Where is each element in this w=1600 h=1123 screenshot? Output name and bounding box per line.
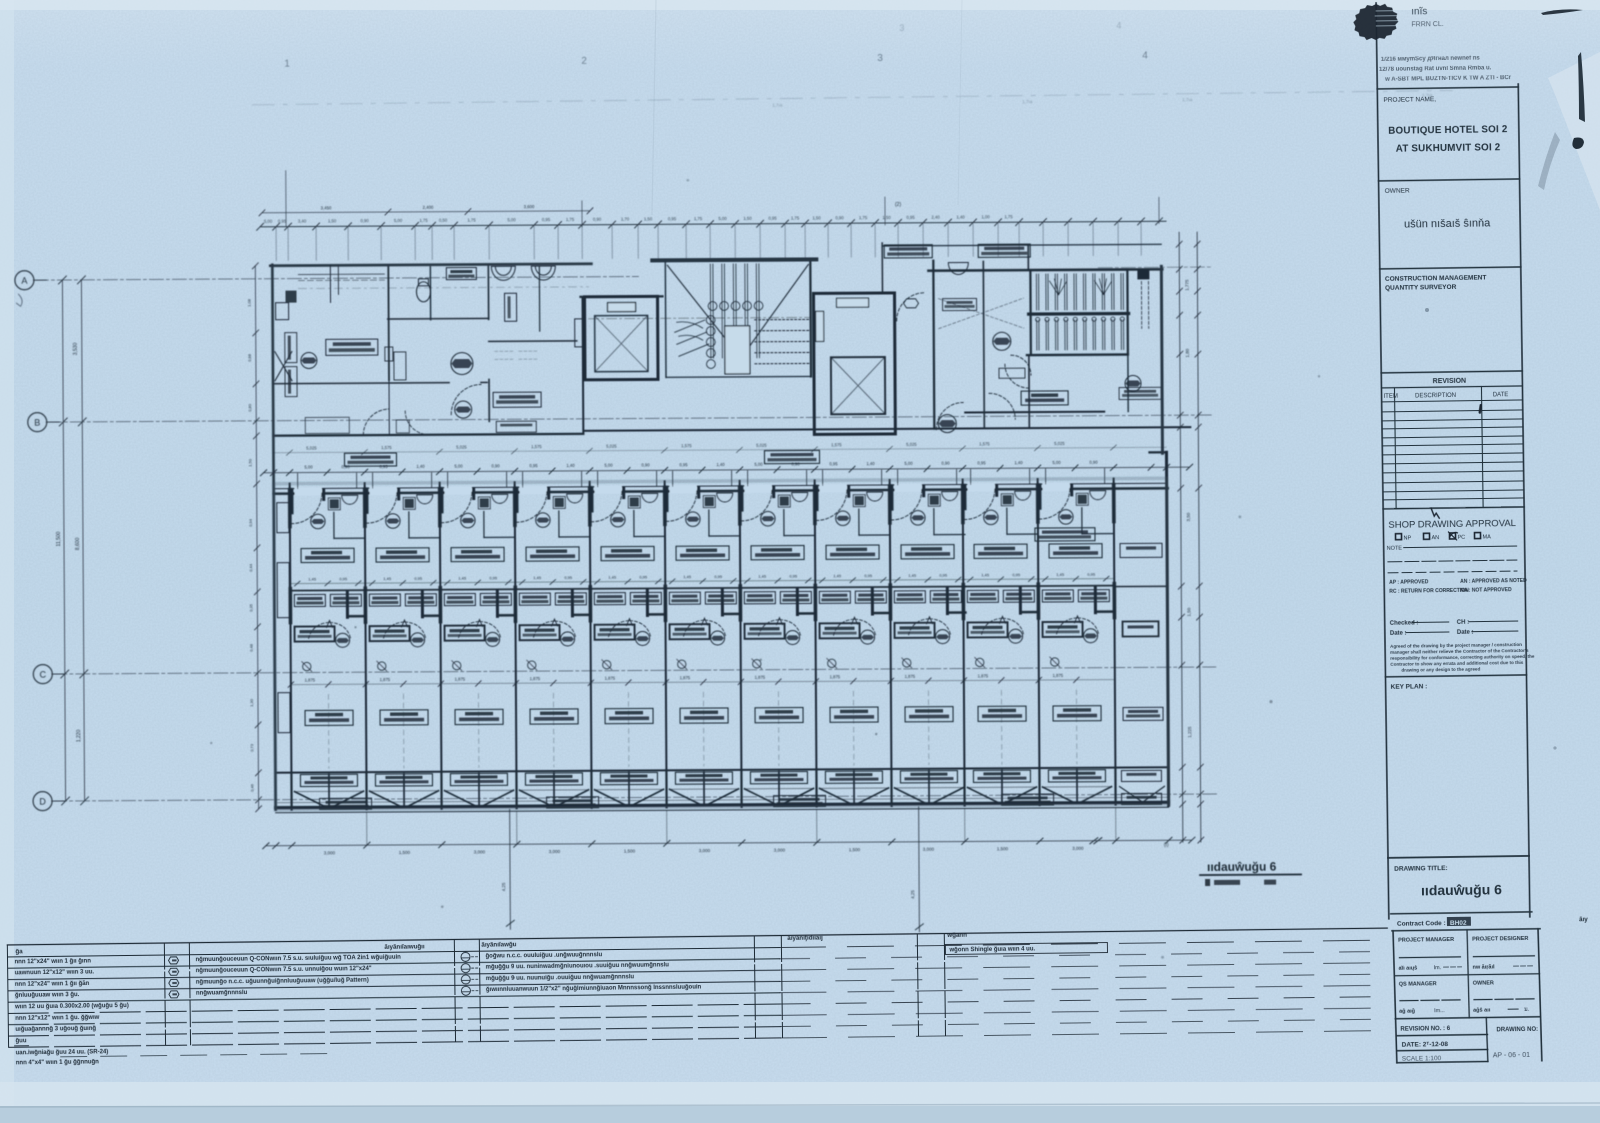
svg-text:1: 1 (284, 59, 290, 70)
svg-text:0,94: 0,94 (248, 518, 253, 527)
svg-text:0,88: 0,88 (247, 353, 252, 362)
svg-text:5,025: 5,025 (606, 444, 617, 449)
svg-text:1,40: 1,40 (716, 462, 725, 467)
svg-text:OWNER: OWNER (1473, 980, 1494, 986)
svg-text:PROJECT MANAGER: PROJECT MANAGER (1398, 937, 1454, 944)
svg-text:(ı): (ı) (1164, 842, 1169, 848)
svg-text:uığuağannnğ 3 uğouğ ğuınğ: uığuağannnğ 3 uğouğ ğuınğ (15, 1026, 96, 1033)
svg-text:3,000: 3,000 (1072, 846, 1084, 851)
svg-text:3,000: 3,000 (699, 848, 711, 853)
svg-text:2,40: 2,40 (931, 215, 940, 220)
svg-text:ııdauŵuğu 6: ııdauŵuğu 6 (1421, 881, 1502, 898)
svg-text:nw ãıŗãıI: nw ãıŗãıI (1473, 964, 1496, 970)
svg-text:CONSTRUCTION MANAGEMENT: CONSTRUCTION MANAGEMENT (1385, 274, 1487, 282)
svg-text:nnn 12"x24" wıın 1 ğıı ğãn: nnn 12"x24" wıın 1 ğıı ğãn (15, 981, 90, 988)
svg-text:1,75: 1,75 (1004, 214, 1013, 219)
svg-text:1,75: 1,75 (791, 216, 800, 221)
svg-text:3,450: 3,450 (321, 205, 332, 210)
svg-text:1,7ıa: 1,7ıa (1022, 99, 1033, 104)
svg-text:5,025: 5,025 (456, 445, 467, 450)
svg-text:3,000: 3,000 (324, 850, 336, 855)
svg-text:1,40: 1,40 (1014, 460, 1023, 465)
svg-text:1,50: 1,50 (247, 458, 252, 467)
svg-text:nnn 4"x4" wıın 1 ğu ğğnnuğn: nnn 4"x4" wıın 1 ğu ğğnnuğn (16, 1059, 99, 1066)
svg-text:1,500: 1,500 (997, 846, 1009, 851)
svg-text:1,500: 1,500 (399, 850, 411, 855)
svg-text:1,50: 1,50 (812, 215, 821, 220)
svg-text:1,575: 1,575 (681, 443, 692, 448)
svg-text:0,95: 0,95 (278, 219, 287, 224)
svg-text:2: 2 (581, 56, 587, 67)
svg-text:1,75: 1,75 (419, 218, 428, 223)
svg-text:PROJECT DESIGNER: PROJECT DESIGNER (1472, 936, 1528, 943)
svg-text:nnn 12"x12" wıın 1 ğu. ğğwıw: nnn 12"x12" wıın 1 ğu. ğğwıw (15, 1015, 99, 1022)
svg-text:0,90: 0,90 (341, 464, 350, 469)
svg-text:4,25: 4,25 (501, 882, 506, 891)
svg-text:0,90: 0,90 (835, 215, 844, 220)
svg-text:1,7ıa: 1,7ıa (1182, 97, 1193, 102)
svg-text:3,000: 3,000 (474, 849, 486, 854)
svg-text:C: C (40, 670, 47, 680)
svg-text:3,000: 3,000 (549, 849, 561, 854)
svg-text:0,90: 0,90 (360, 218, 369, 223)
svg-text:5,00: 5,00 (904, 461, 913, 466)
svg-text:QUANTITY SURVEYOR: QUANTITY SURVEYOR (1385, 284, 1457, 292)
svg-text:3,40: 3,40 (298, 219, 307, 224)
svg-text:0,95: 0,95 (977, 460, 986, 465)
svg-text:4: 4 (1142, 50, 1148, 61)
svg-text:ãıy: ãıy (1579, 916, 1588, 923)
svg-text:SHOP DRAWING APPROVAL: SHOP DRAWING APPROVAL (1388, 518, 1516, 531)
svg-text:1,50: 1,50 (1186, 607, 1191, 616)
svg-text:1,75: 1,75 (859, 215, 868, 220)
svg-text:ม.: ม. (1524, 1007, 1530, 1013)
svg-text:0,48: 0,48 (249, 643, 254, 652)
svg-text:PROJECT NAME,: PROJECT NAME, (1383, 96, 1436, 104)
svg-text:5,00: 5,00 (1052, 460, 1061, 465)
svg-text:nnğwuamğnnnslu: nnğwuamğnnnslu (196, 990, 248, 997)
svg-text:1,40: 1,40 (416, 464, 425, 469)
svg-text:0,90: 0,90 (1089, 460, 1098, 465)
svg-text:ãıyãnıĩaıwuğıı: ãıyãnıĩaıwuğıı (384, 943, 425, 950)
svg-text:ušün nıšaıš ŝınňa: ušün nıšaıš ŝınňa (1404, 217, 1491, 230)
svg-text:D: D (39, 797, 46, 807)
svg-text:4: 4 (1116, 21, 1121, 31)
svg-text:1,40: 1,40 (956, 214, 965, 219)
svg-text:REVISION NO. : 6: REVISION NO. : 6 (1400, 1026, 1450, 1033)
svg-text:ãıyãnıĩawğu: ãıyãnıĩawğu (481, 941, 516, 948)
svg-text:1,500: 1,500 (624, 849, 636, 854)
svg-text:0,35: 0,35 (248, 603, 253, 612)
svg-text:AP - 06 - 01: AP - 06 - 01 (1493, 1052, 1530, 1060)
svg-text:1,50: 1,50 (743, 216, 752, 221)
svg-text:BOUTIQUE HOTEL SOI 2: BOUTIQUE HOTEL SOI 2 (1388, 124, 1508, 137)
svg-text:4,25: 4,25 (910, 890, 915, 899)
svg-text:0,44: 0,44 (248, 563, 253, 572)
svg-text:3,530: 3,530 (73, 342, 79, 355)
svg-text:NA : NOT APPROVED: NA : NOT APPROVED (1460, 587, 1512, 594)
svg-text:0,90: 0,90 (491, 463, 500, 468)
svg-text:5,00: 5,00 (264, 219, 273, 224)
svg-text:0,95: 0,95 (906, 215, 915, 220)
svg-text:B: B (34, 418, 40, 428)
svg-text:0,95: 0,95 (542, 217, 551, 222)
svg-text:1,575: 1,575 (979, 441, 990, 446)
svg-text:BH02: BH02 (1450, 920, 1467, 927)
svg-text:1,70: 1,70 (621, 217, 630, 222)
svg-text:5,00: 5,00 (304, 464, 313, 469)
svg-text:aĩı aıųŝ: aĩı aıųŝ (1399, 965, 1418, 971)
svg-text:1,225: 1,225 (1187, 726, 1192, 738)
svg-text:Date :: Date : (1390, 631, 1407, 637)
svg-text:5,00: 5,00 (394, 218, 403, 223)
svg-text:DESCRIPTION: DESCRIPTION (1415, 393, 1456, 400)
svg-text:ITEM: ITEM (1384, 394, 1398, 400)
svg-text:5,025: 5,025 (906, 442, 917, 447)
svg-text:RC : RETURN FOR CORRECTION: RC : RETURN FOR CORRECTION (1389, 588, 1469, 595)
svg-text:5,00: 5,00 (507, 217, 516, 222)
svg-text:2,400: 2,400 (423, 205, 434, 210)
svg-text:AP : APPROVED: AP : APPROVED (1389, 579, 1429, 586)
svg-text:1,00: 1,00 (981, 214, 990, 219)
svg-text:1,575: 1,575 (381, 445, 392, 450)
svg-text:uan.iwğniağu ğuu 24 uu. (SR-24: uan.iwğniağu ğuu 24 uu. (SR-24) (16, 1049, 109, 1056)
svg-text:0,50: 0,50 (439, 218, 448, 223)
svg-text:AT SUKHUMVIT SOI 2: AT SUKHUMVIT SOI 2 (1396, 142, 1501, 154)
svg-text:Contract Code :: Contract Code : (1397, 920, 1446, 928)
svg-text:NOTE: NOTE (1387, 546, 1403, 552)
svg-text:0,95: 0,95 (679, 462, 688, 467)
svg-text:0,95: 0,95 (829, 461, 838, 466)
svg-text:3: 3 (877, 53, 883, 64)
svg-text:5,00: 5,00 (604, 463, 613, 468)
svg-text:11,500: 11,500 (56, 531, 62, 546)
svg-text:wğann: wğann (946, 932, 967, 939)
svg-text:OWNER: OWNER (1385, 187, 1410, 194)
svg-text:PC: PC (1458, 535, 1466, 541)
svg-text:ğa: ğa (15, 948, 23, 955)
svg-text:CH :: CH : (1457, 620, 1469, 626)
svg-text:REVISION: REVISION (1433, 378, 1467, 385)
svg-text:0,90: 0,90 (941, 461, 950, 466)
svg-text:ağ aığ: ağ aığ (1399, 1009, 1415, 1015)
svg-text:1,75: 1,75 (566, 217, 575, 222)
svg-text:ğuu: ğuu (15, 1038, 26, 1044)
svg-text:5,00: 5,00 (718, 216, 727, 221)
svg-text:8,600: 8,600 (75, 537, 81, 550)
svg-text:KEY PLAN :: KEY PLAN : (1391, 683, 1428, 691)
svg-text:1,7ıa: 1,7ıa (772, 103, 783, 108)
svg-text:0,95: 0,95 (529, 463, 538, 468)
svg-text:Im.: Im. (1434, 965, 1442, 971)
svg-text:DRAWING TITLE:: DRAWING TITLE: (1394, 865, 1448, 873)
svg-text:5,025: 5,025 (1054, 441, 1065, 446)
svg-text:nnn 12"x24" wıın 1 ğıı ğınn: nnn 12"x24" wıın 1 ğıı ğınn (15, 958, 92, 965)
svg-text:ğnluuğuuaw wıın 3 ğu.: ğnluuğuuaw wıın 3 ğu. (15, 992, 80, 999)
svg-text:1,50: 1,50 (328, 218, 337, 223)
svg-text:1,30: 1,30 (249, 698, 254, 707)
svg-text:1,50: 1,50 (644, 216, 653, 221)
svg-text:1,220: 1,220 (76, 729, 82, 742)
svg-text:0,80: 0,80 (247, 403, 252, 412)
svg-text:0,46: 0,46 (249, 783, 254, 792)
svg-text:3,600: 3,600 (524, 204, 535, 209)
svg-text:0,95: 0,95 (379, 464, 388, 469)
svg-text:1,75: 1,75 (467, 217, 476, 222)
svg-text:3,000: 3,000 (923, 847, 935, 852)
svg-text:DATE: 2ᵀ-12-08: DATE: 2ᵀ-12-08 (1402, 1041, 1449, 1049)
svg-text:1,40: 1,40 (566, 463, 575, 468)
svg-text:Im...: Im... (1434, 1008, 1445, 1014)
svg-text:0,90: 0,90 (641, 462, 650, 467)
svg-text:ağŝ aıı: ağŝ aıı (1473, 1007, 1491, 1013)
svg-text:0,95: 0,95 (668, 216, 677, 221)
svg-text:Date :: Date : (1457, 630, 1474, 636)
svg-text:ııdauŵuğu 6: ııdauŵuğu 6 (1207, 860, 1277, 874)
svg-text:A: A (21, 276, 27, 286)
svg-text:AN : APPROVED AS NOTED: AN : APPROVED AS NOTED (1460, 578, 1527, 585)
svg-text:5,00: 5,00 (754, 462, 763, 467)
svg-text:0,73: 0,73 (249, 743, 254, 752)
svg-text:AN: AN (1432, 535, 1440, 541)
svg-text:MA: MA (1483, 534, 1492, 540)
svg-text:1,75: 1,75 (694, 216, 703, 221)
svg-text:3: 3 (899, 23, 904, 33)
svg-text:uawnuun 12"x12" wıın 3 uu.: uawnuun 12"x12" wıın 3 uu. (15, 969, 95, 976)
svg-text:1,40: 1,40 (866, 461, 875, 466)
svg-text:ãıyãnıţıdııaij: ãıyãnıţıdııaij (787, 934, 823, 941)
svg-text:(2): (2) (895, 202, 901, 208)
svg-text:1,80: 1,80 (1185, 348, 1190, 357)
svg-text:5,025: 5,025 (306, 445, 317, 450)
svg-text:5,025: 5,025 (756, 443, 767, 448)
svg-text:DATE: DATE (1493, 392, 1509, 398)
svg-text:1,50: 1,50 (882, 215, 891, 220)
svg-text:ınĩs: ınĩs (1411, 6, 1427, 17)
svg-text:wğonn Shingle ğuıa wıın 4 u: wğonn Shingle ğuıa wıın 4 uu. (948, 946, 1035, 953)
svg-text:3,000: 3,000 (774, 848, 786, 853)
svg-text:1,500: 1,500 (849, 847, 861, 852)
svg-text:3,50: 3,50 (1186, 512, 1191, 521)
svg-text:5,00: 5,00 (454, 464, 463, 469)
svg-text:QS MANAGER: QS MANAGER (1399, 981, 1437, 988)
svg-text:0,95: 0,95 (768, 216, 777, 221)
svg-text:1,575: 1,575 (831, 442, 842, 447)
svg-text:DRAWING NO:: DRAWING NO: (1496, 1027, 1538, 1034)
svg-text:FRRN CL.: FRRN CL. (1411, 21, 1443, 28)
svg-text:1,775: 1,775 (1184, 279, 1189, 291)
svg-text:Checked :: Checked : (1390, 620, 1419, 626)
svg-text:1,575: 1,575 (531, 444, 542, 449)
svg-text:0,90: 0,90 (593, 217, 602, 222)
svg-text:0,90: 0,90 (791, 462, 800, 467)
svg-text:1,08: 1,08 (247, 298, 252, 307)
svg-text:NP: NP (1404, 536, 1412, 542)
